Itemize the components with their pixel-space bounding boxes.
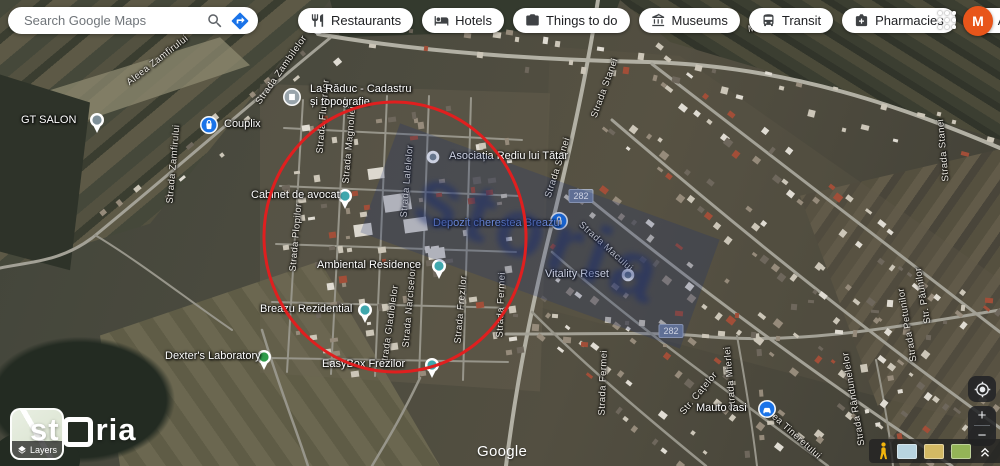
- search-box[interactable]: Search Google Maps: [8, 7, 258, 34]
- chip-label: Restaurants: [331, 13, 401, 28]
- pegman-icon[interactable]: [877, 441, 890, 461]
- things-to-do-icon: [525, 13, 540, 28]
- storia-logo-square: [63, 417, 93, 447]
- avatar-letter: M: [972, 13, 984, 29]
- my-location-icon: [974, 381, 991, 398]
- chip-label: Pharmacies: [875, 13, 944, 28]
- imagery-thumbnail[interactable]: [951, 444, 971, 459]
- hotels-icon: [434, 13, 449, 28]
- directions-button[interactable]: [230, 11, 250, 31]
- search-icon[interactable]: [206, 12, 224, 30]
- zoom-in-button[interactable]: +: [968, 406, 996, 425]
- category-chips: Restaurants Hotels Things to do Museums …: [298, 8, 1000, 33]
- chip-label: Things to do: [546, 13, 618, 28]
- collapse-icon[interactable]: [978, 444, 992, 458]
- chip-restaurants[interactable]: Restaurants: [298, 8, 413, 33]
- chip-transit[interactable]: Transit: [749, 8, 833, 33]
- my-location-button[interactable]: [968, 376, 996, 402]
- transit-icon: [761, 13, 776, 28]
- annotation-layer: [0, 0, 1000, 466]
- storia-logo-text: ria: [96, 412, 137, 448]
- restaurants-icon: [310, 13, 325, 28]
- chip-label: Hotels: [455, 13, 492, 28]
- layers-icon: [17, 445, 27, 455]
- account-avatar[interactable]: M: [963, 6, 993, 36]
- chip-things-to-do[interactable]: Things to do: [513, 8, 630, 33]
- search-input[interactable]: Search Google Maps: [24, 13, 206, 28]
- chip-label: Museums: [672, 13, 728, 28]
- storia-logo-text: st: [30, 412, 60, 448]
- chip-museums[interactable]: Museums: [639, 8, 740, 33]
- google-apps-grid-icon[interactable]: [938, 11, 956, 29]
- museums-icon: [651, 13, 666, 28]
- imagery-thumbnail[interactable]: [897, 444, 917, 459]
- annotation-circle: [255, 93, 535, 381]
- imagery-thumbnail[interactable]: [924, 444, 944, 459]
- map-canvas[interactable]: MârzeștiStrada ZambilelorAleea Zamfirulu…: [0, 0, 1000, 466]
- chip-hotels[interactable]: Hotels: [422, 8, 504, 33]
- google-maps-screen: MârzeștiStrada ZambilelorAleea Zamfirulu…: [0, 0, 1000, 466]
- storia-logo: st ria: [30, 412, 137, 448]
- imagery-bar: [869, 439, 1000, 463]
- chip-label: Transit: [782, 13, 821, 28]
- google-watermark: Google: [477, 443, 527, 460]
- pharmacies-icon: [854, 13, 869, 28]
